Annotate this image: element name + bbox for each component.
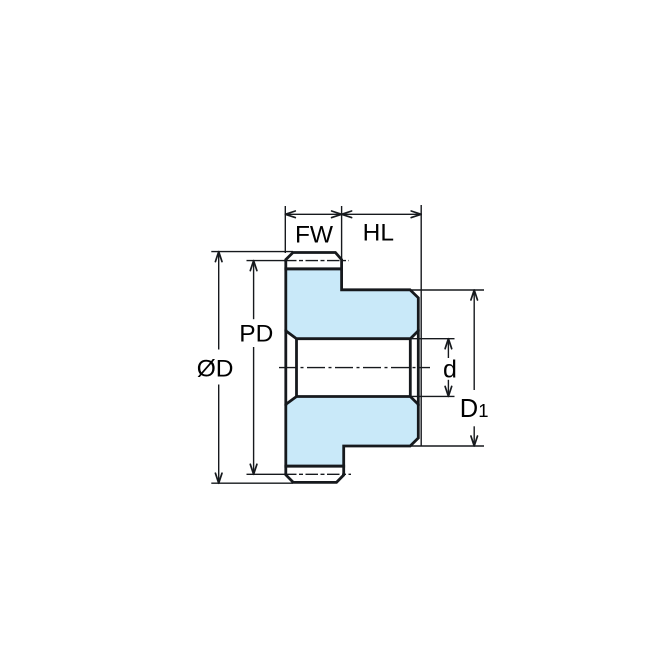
- svg-text:PD: PD: [239, 321, 273, 348]
- svg-text:d: d: [443, 356, 457, 384]
- svg-text:FW: FW: [295, 221, 334, 248]
- svg-text:D1: D1: [460, 395, 489, 423]
- svg-text:ØD: ØD: [197, 355, 234, 382]
- svg-text:HL: HL: [363, 220, 394, 247]
